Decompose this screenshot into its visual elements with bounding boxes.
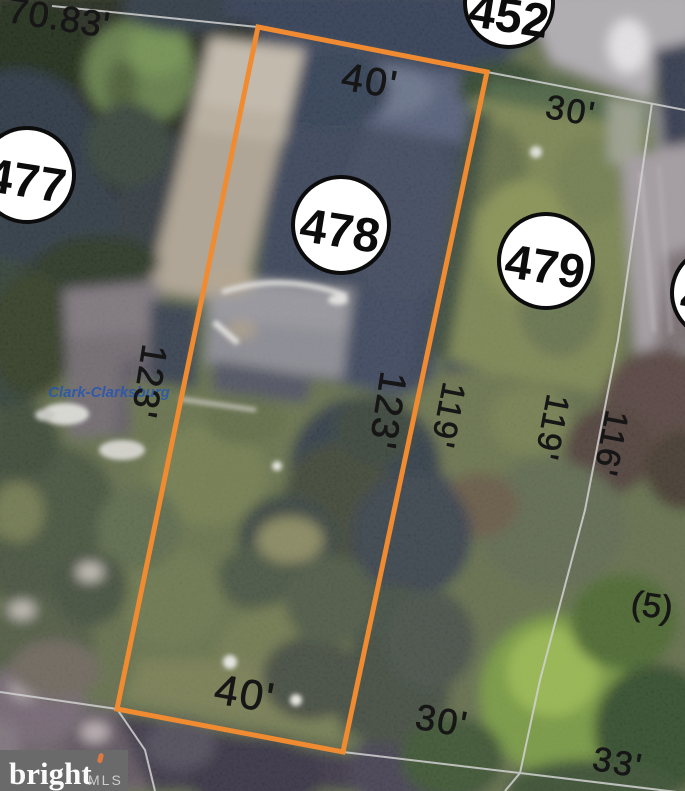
svg-text:bright: bright [9,756,92,791]
svg-text:(5): (5) [629,584,676,628]
svg-text:MLS: MLS [88,772,123,788]
